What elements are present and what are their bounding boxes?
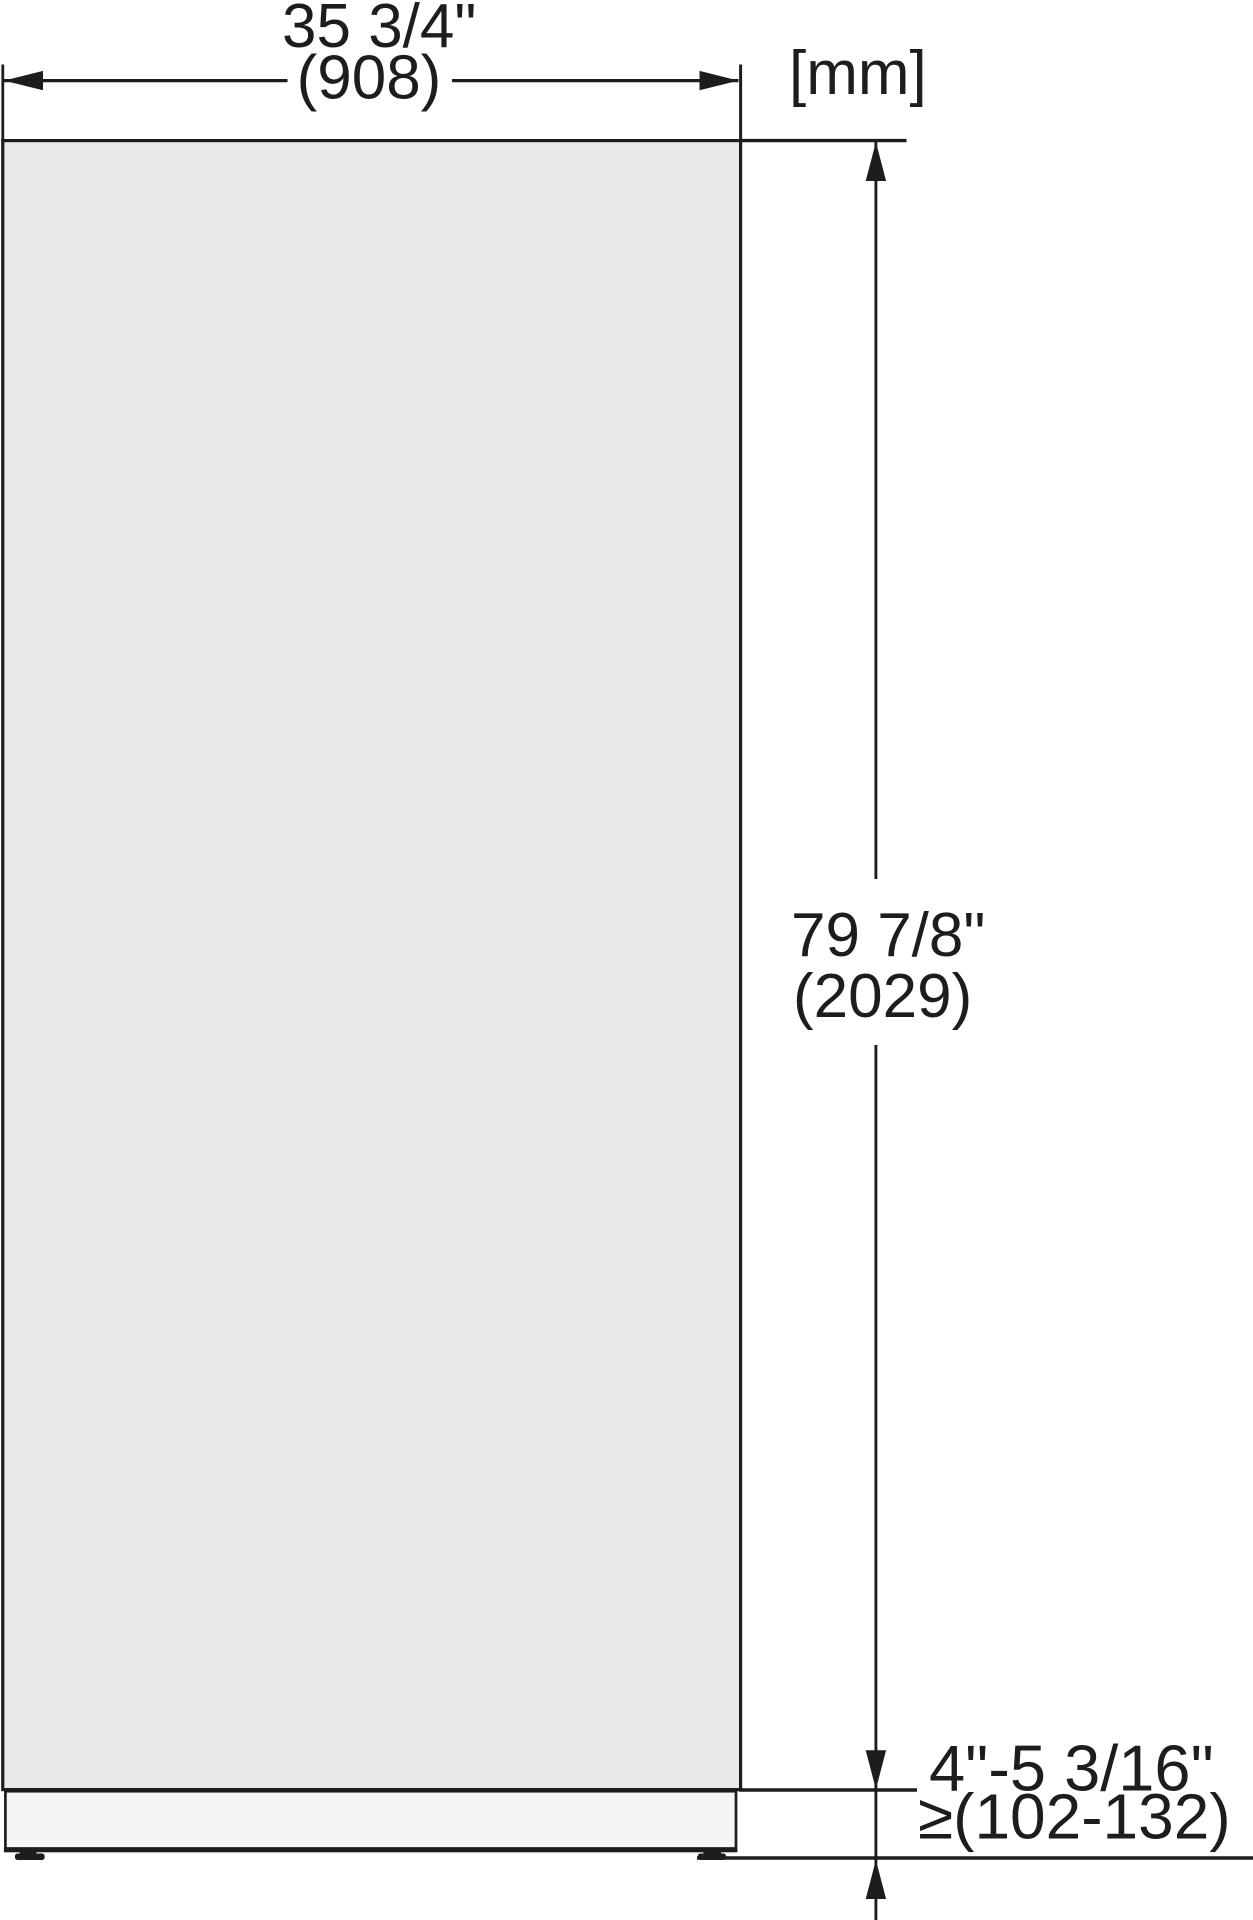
svg-text:79 7/8": 79 7/8" [791,901,985,970]
svg-text:(908): (908) [297,44,442,113]
svg-text:(2029): (2029) [793,962,972,1031]
svg-text:[mm]: [mm] [789,39,927,108]
svg-text:≥(102-132): ≥(102-132) [918,1781,1231,1853]
